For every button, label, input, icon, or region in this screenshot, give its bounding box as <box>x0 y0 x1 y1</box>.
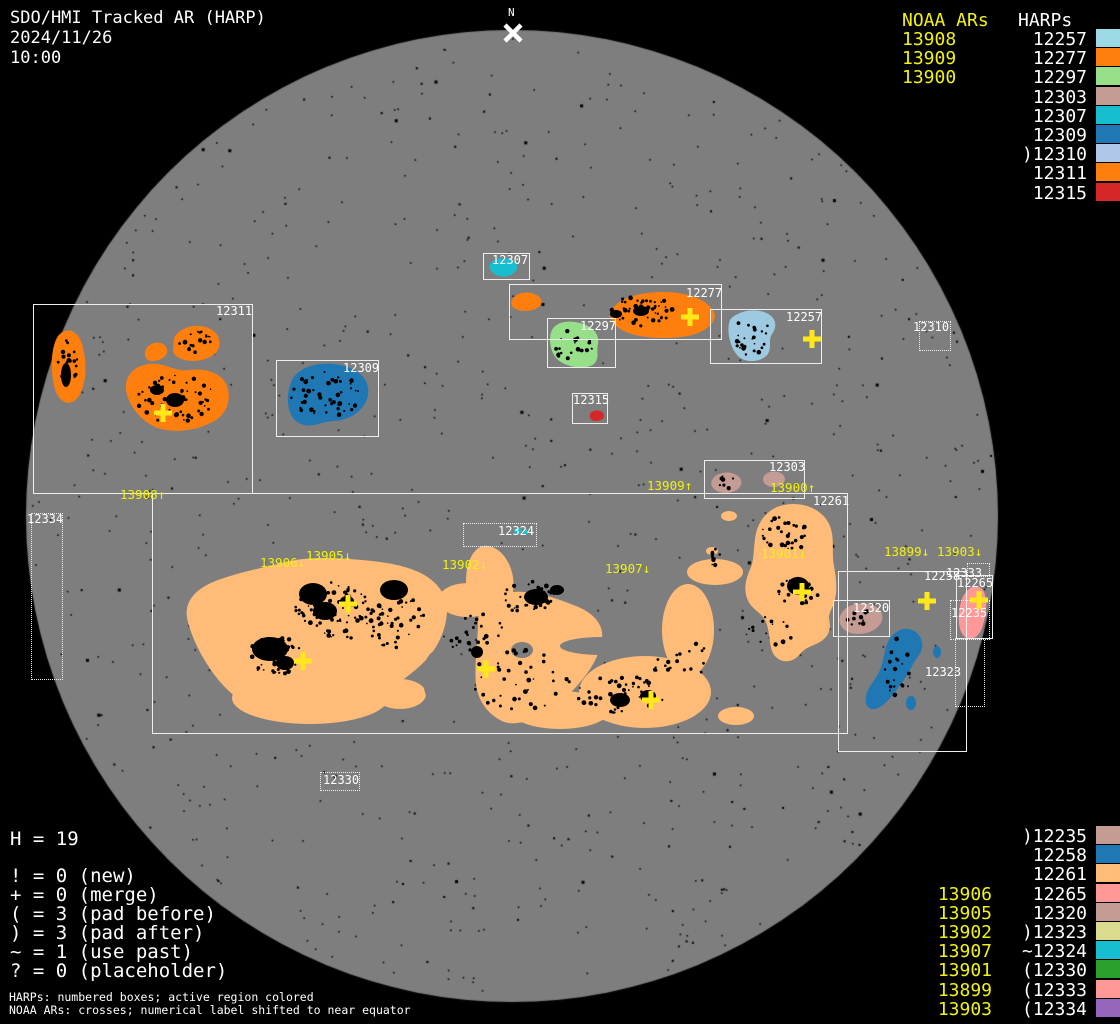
legend-swatch-12307 <box>1096 106 1120 124</box>
harps-header: HARPs <box>1018 11 1072 30</box>
legend-noaa-13906: 13906 <box>902 885 992 904</box>
noaa-cross <box>918 592 936 610</box>
plot-date: 2024/11/26 <box>10 28 112 48</box>
noaa-cross <box>642 691 660 709</box>
legend-swatch-12258 <box>1096 845 1120 863</box>
legend-swatch-12265 <box>1096 884 1120 902</box>
legend-harp-12261: 12261 <box>987 865 1087 884</box>
legend-noaa-13909: 13909 <box>902 49 956 68</box>
noaa-cross <box>154 404 172 422</box>
legend-harp-12277: 12277 <box>987 49 1087 68</box>
noaa-cross <box>294 652 312 670</box>
legend-harp-12258: 12258 <box>987 846 1087 865</box>
legend-swatch-12334 <box>1096 999 1120 1017</box>
legend-swatch-12333 <box>1096 980 1120 998</box>
legend-harp-12310: )12310 <box>987 145 1087 164</box>
noaa-cross <box>970 591 988 609</box>
legend-swatch-12323 <box>1096 922 1120 940</box>
harp-tracking-plot: 1231112309123071227712297122571231512303… <box>0 0 1120 1024</box>
legend-swatch-12277 <box>1096 48 1120 66</box>
legend-noaa-13902: 13902 <box>902 923 992 942</box>
legend-harp-12235: )12235 <box>987 827 1087 846</box>
legend-noaa-13903: 13903 <box>902 1000 992 1019</box>
legend-harp-12303: 12303 <box>987 88 1087 107</box>
noaa-cross <box>793 583 811 601</box>
symbol-placeholder: ? = 0 (placeholder) <box>10 962 227 981</box>
north-pole-cross <box>505 25 521 41</box>
legend-noaa-13899: 13899 <box>902 981 992 1000</box>
legend-swatch-12330 <box>1096 960 1120 978</box>
noaa-cross <box>803 330 821 348</box>
legend-swatch-12257 <box>1096 29 1120 47</box>
legend-harp-12307: 12307 <box>987 107 1087 126</box>
legend-noaa-13908: 13908 <box>902 30 956 49</box>
legend-harp-12330: (12330 <box>987 961 1087 980</box>
note-noaa: NOAA ARs: crosses; numerical label shift… <box>9 1004 411 1017</box>
plot-time: 10:00 <box>10 48 61 68</box>
north-marker-label: N <box>508 6 515 19</box>
legend-harp-12324: ~12324 <box>987 942 1087 961</box>
legend-swatch-12309 <box>1096 125 1120 143</box>
legend-swatch-12315 <box>1096 183 1120 201</box>
legend-noaa-13905: 13905 <box>902 904 992 923</box>
legend-harp-12334: (12334 <box>987 1000 1087 1019</box>
legend-harp-12309: 12309 <box>987 126 1087 145</box>
plot-title: SDO/HMI Tracked AR (HARP) <box>10 8 266 28</box>
noaa-cross <box>339 595 357 613</box>
noaa-cross <box>681 308 699 326</box>
legend-harp-12265: 12265 <box>987 885 1087 904</box>
noaa-ars-header: NOAA ARs <box>902 11 989 30</box>
legend-swatch-12303 <box>1096 87 1120 105</box>
legend-noaa-13901: 13901 <box>902 961 992 980</box>
legend-harp-12333: (12333 <box>987 981 1087 1000</box>
noaa-cross <box>477 660 495 678</box>
legend-swatch-12261 <box>1096 864 1120 882</box>
crosses-layer <box>0 0 1120 1024</box>
legend-harp-12297: 12297 <box>987 68 1087 87</box>
legend-noaa-13907: 13907 <box>902 942 992 961</box>
legend-harp-12257: 12257 <box>987 30 1087 49</box>
legend-harp-12315: 12315 <box>987 184 1087 203</box>
legend-noaa-13900: 13900 <box>902 68 956 87</box>
legend-swatch-12235 <box>1096 826 1120 844</box>
harp-count: H = 19 <box>10 830 79 849</box>
legend-harp-12311: 12311 <box>987 164 1087 183</box>
legend-swatch-12320 <box>1096 903 1120 921</box>
legend-swatch-12297 <box>1096 67 1120 85</box>
legend-swatch-12311 <box>1096 163 1120 181</box>
legend-swatch-12324 <box>1096 941 1120 959</box>
legend-swatch-12310 <box>1096 144 1120 162</box>
legend-harp-12323: )12323 <box>987 923 1087 942</box>
legend-harp-12320: 12320 <box>987 904 1087 923</box>
